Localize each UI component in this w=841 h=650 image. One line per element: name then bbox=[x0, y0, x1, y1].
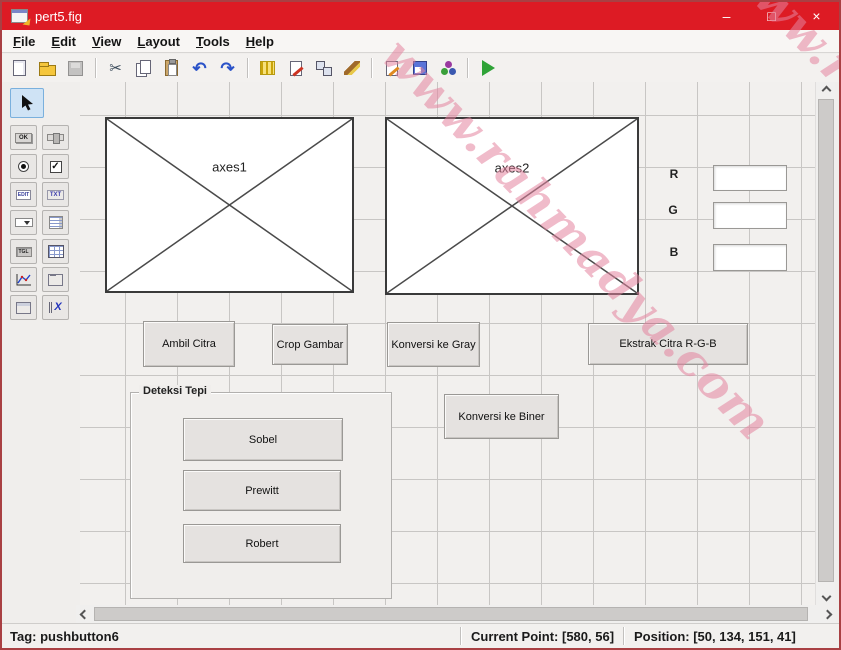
table-icon bbox=[48, 245, 64, 258]
edit-field-g[interactable] bbox=[713, 202, 787, 229]
edit-text-icon: EDIT bbox=[16, 190, 31, 200]
toolbar: ✂ ↶ ↷ bbox=[2, 54, 839, 82]
component-palette: OK ✓ EDIT TXT TGL X bbox=[2, 82, 80, 605]
listbox-tool[interactable] bbox=[42, 210, 69, 235]
panel-tool[interactable] bbox=[42, 267, 69, 292]
deteksi-tepi-panel[interactable]: Deteksi Tepi Sobel Prewitt Robert bbox=[130, 392, 392, 599]
robert-button[interactable]: Robert bbox=[183, 524, 341, 563]
undo-icon: ↶ bbox=[192, 60, 206, 77]
statusbar: Tag: pushbutton6 Current Point: [580, 56… bbox=[2, 623, 839, 648]
close-button[interactable]: × bbox=[794, 2, 839, 30]
toolbar-separator bbox=[247, 58, 248, 78]
sobel-button[interactable]: Sobel bbox=[183, 418, 343, 461]
mfile-editor-icon bbox=[386, 61, 398, 76]
listbox-icon bbox=[49, 216, 63, 229]
static-text-g[interactable]: G bbox=[665, 203, 681, 217]
axes2-label: axes2 bbox=[493, 160, 532, 175]
tab-order-editor-button[interactable] bbox=[311, 56, 336, 80]
deteksi-tepi-panel-title: Deteksi Tepi bbox=[139, 385, 211, 397]
property-inspector-icon bbox=[413, 61, 427, 75]
new-icon bbox=[13, 60, 26, 76]
vertical-scroll-thumb[interactable] bbox=[818, 99, 834, 582]
undo-button[interactable]: ↶ bbox=[187, 56, 212, 80]
status-position: Position: [50, 134, 151, 41] bbox=[624, 629, 839, 644]
toolbar-separator bbox=[467, 58, 468, 78]
run-button[interactable] bbox=[475, 56, 500, 80]
window-title: pert5.fig bbox=[35, 9, 82, 24]
activex-tool[interactable]: X bbox=[42, 295, 69, 320]
ekstrak-citra-rgb-button[interactable]: Ekstrak Citra R-G-B bbox=[588, 323, 748, 365]
toggle-button-icon: TGL bbox=[16, 247, 32, 257]
chevron-up-icon bbox=[821, 86, 831, 96]
panel-icon bbox=[48, 274, 63, 286]
menu-help[interactable]: Help bbox=[238, 31, 282, 52]
toolbar-separator bbox=[371, 58, 372, 78]
menu-editor-button[interactable] bbox=[283, 56, 308, 80]
window-controls: – □ × bbox=[704, 2, 839, 30]
toggle-button-tool[interactable]: TGL bbox=[10, 239, 37, 264]
axes1-widget[interactable]: axes1 bbox=[105, 117, 354, 293]
ambil-citra-button[interactable]: Ambil Citra bbox=[143, 321, 235, 367]
menu-view[interactable]: View bbox=[84, 31, 129, 52]
chevron-down-icon bbox=[821, 592, 831, 602]
radio-button-tool[interactable] bbox=[10, 154, 37, 179]
toolbar-editor-icon bbox=[344, 61, 360, 75]
vertical-scrollbar bbox=[815, 82, 835, 605]
static-text-b[interactable]: B bbox=[666, 245, 682, 259]
menu-layout[interactable]: Layout bbox=[129, 31, 188, 52]
status-tag: Tag: pushbutton6 bbox=[2, 629, 460, 644]
button-group-tool[interactable] bbox=[10, 295, 37, 320]
copy-button[interactable] bbox=[131, 56, 156, 80]
new-figure-button[interactable] bbox=[7, 56, 32, 80]
layout-canvas[interactable]: axes1 axes2 R G B Ambil Citra Crop Gamba… bbox=[80, 82, 815, 605]
scroll-right-button[interactable] bbox=[819, 605, 836, 623]
edit-field-r[interactable] bbox=[713, 165, 787, 191]
select-tool-button[interactable] bbox=[10, 88, 44, 118]
run-triangle-icon bbox=[482, 60, 495, 76]
minimize-button[interactable]: – bbox=[704, 2, 749, 30]
tab-order-icon bbox=[316, 61, 332, 76]
popup-menu-tool[interactable] bbox=[10, 210, 37, 235]
paste-clipboard-icon bbox=[165, 60, 178, 76]
static-text-tool[interactable]: TXT bbox=[42, 182, 69, 207]
static-text-r[interactable]: R bbox=[666, 167, 682, 181]
push-button-icon: OK bbox=[15, 133, 32, 143]
editor-button[interactable] bbox=[379, 56, 404, 80]
matlab-figure-icon bbox=[11, 9, 28, 23]
chevron-left-icon bbox=[80, 609, 90, 619]
button-group-icon bbox=[16, 302, 31, 314]
titlebar: pert5.fig – □ × bbox=[2, 2, 839, 30]
axes-placeholder-cross-icon bbox=[107, 119, 352, 291]
horizontal-scrollbar bbox=[76, 605, 836, 623]
cut-scissors-icon: ✂ bbox=[109, 61, 122, 76]
push-button-tool[interactable]: OK bbox=[10, 125, 37, 150]
align-objects-icon bbox=[260, 61, 275, 75]
cursor-arrow-icon bbox=[21, 95, 34, 111]
edit-text-tool[interactable]: EDIT bbox=[10, 182, 37, 207]
horizontal-scroll-thumb[interactable] bbox=[94, 607, 808, 621]
prewitt-button[interactable]: Prewitt bbox=[183, 470, 341, 511]
maximize-button[interactable]: □ bbox=[749, 2, 794, 30]
scroll-left-button[interactable] bbox=[76, 605, 93, 623]
axes2-widget[interactable]: axes2 bbox=[385, 117, 639, 295]
axes1-label: axes1 bbox=[210, 160, 249, 175]
toolbar-editor-button[interactable] bbox=[339, 56, 364, 80]
konversi-ke-biner-button[interactable]: Konversi ke Biner bbox=[444, 394, 559, 439]
activex-icon: X bbox=[49, 302, 61, 313]
save-disk-icon bbox=[68, 61, 83, 76]
align-objects-button[interactable] bbox=[255, 56, 280, 80]
popup-menu-icon bbox=[15, 218, 33, 227]
redo-button[interactable]: ↷ bbox=[215, 56, 240, 80]
radio-button-icon bbox=[18, 161, 29, 172]
check-box-icon: ✓ bbox=[50, 161, 62, 173]
menu-file[interactable]: File bbox=[5, 31, 43, 52]
scroll-down-button[interactable] bbox=[816, 588, 836, 605]
save-figure-button[interactable] bbox=[63, 56, 88, 80]
property-inspector-button[interactable] bbox=[407, 56, 432, 80]
paste-button[interactable] bbox=[159, 56, 184, 80]
copy-icon bbox=[136, 60, 151, 76]
chevron-right-icon bbox=[823, 609, 833, 619]
table-tool[interactable] bbox=[42, 239, 69, 264]
edit-field-b[interactable] bbox=[713, 244, 787, 271]
redo-icon: ↷ bbox=[220, 60, 234, 77]
axes-placeholder-cross-icon bbox=[387, 119, 637, 293]
slider-icon bbox=[47, 134, 64, 141]
axes-icon bbox=[15, 273, 32, 287]
status-current-point: Current Point: [580, 56] bbox=[461, 629, 623, 644]
guide-window: pert5.fig – □ × File Edit View Layout To… bbox=[0, 0, 841, 650]
open-figure-button[interactable] bbox=[35, 56, 60, 80]
menubar: File Edit View Layout Tools Help bbox=[2, 30, 839, 53]
object-browser-button[interactable] bbox=[435, 56, 460, 80]
menu-editor-icon bbox=[290, 61, 302, 76]
axes-tool[interactable] bbox=[10, 267, 37, 292]
cut-button[interactable]: ✂ bbox=[103, 56, 128, 80]
konversi-ke-gray-button[interactable]: Konversi ke Gray bbox=[387, 322, 480, 367]
check-box-tool[interactable]: ✓ bbox=[42, 154, 69, 179]
crop-gambar-button[interactable]: Crop Gambar bbox=[272, 324, 348, 365]
menu-edit[interactable]: Edit bbox=[43, 31, 84, 52]
toolbar-separator bbox=[95, 58, 96, 78]
open-folder-icon bbox=[39, 65, 56, 76]
slider-tool[interactable] bbox=[42, 125, 69, 150]
object-browser-icon bbox=[440, 61, 456, 75]
scroll-up-button[interactable] bbox=[816, 82, 836, 99]
menu-tools[interactable]: Tools bbox=[188, 31, 238, 52]
static-text-icon: TXT bbox=[47, 190, 64, 200]
